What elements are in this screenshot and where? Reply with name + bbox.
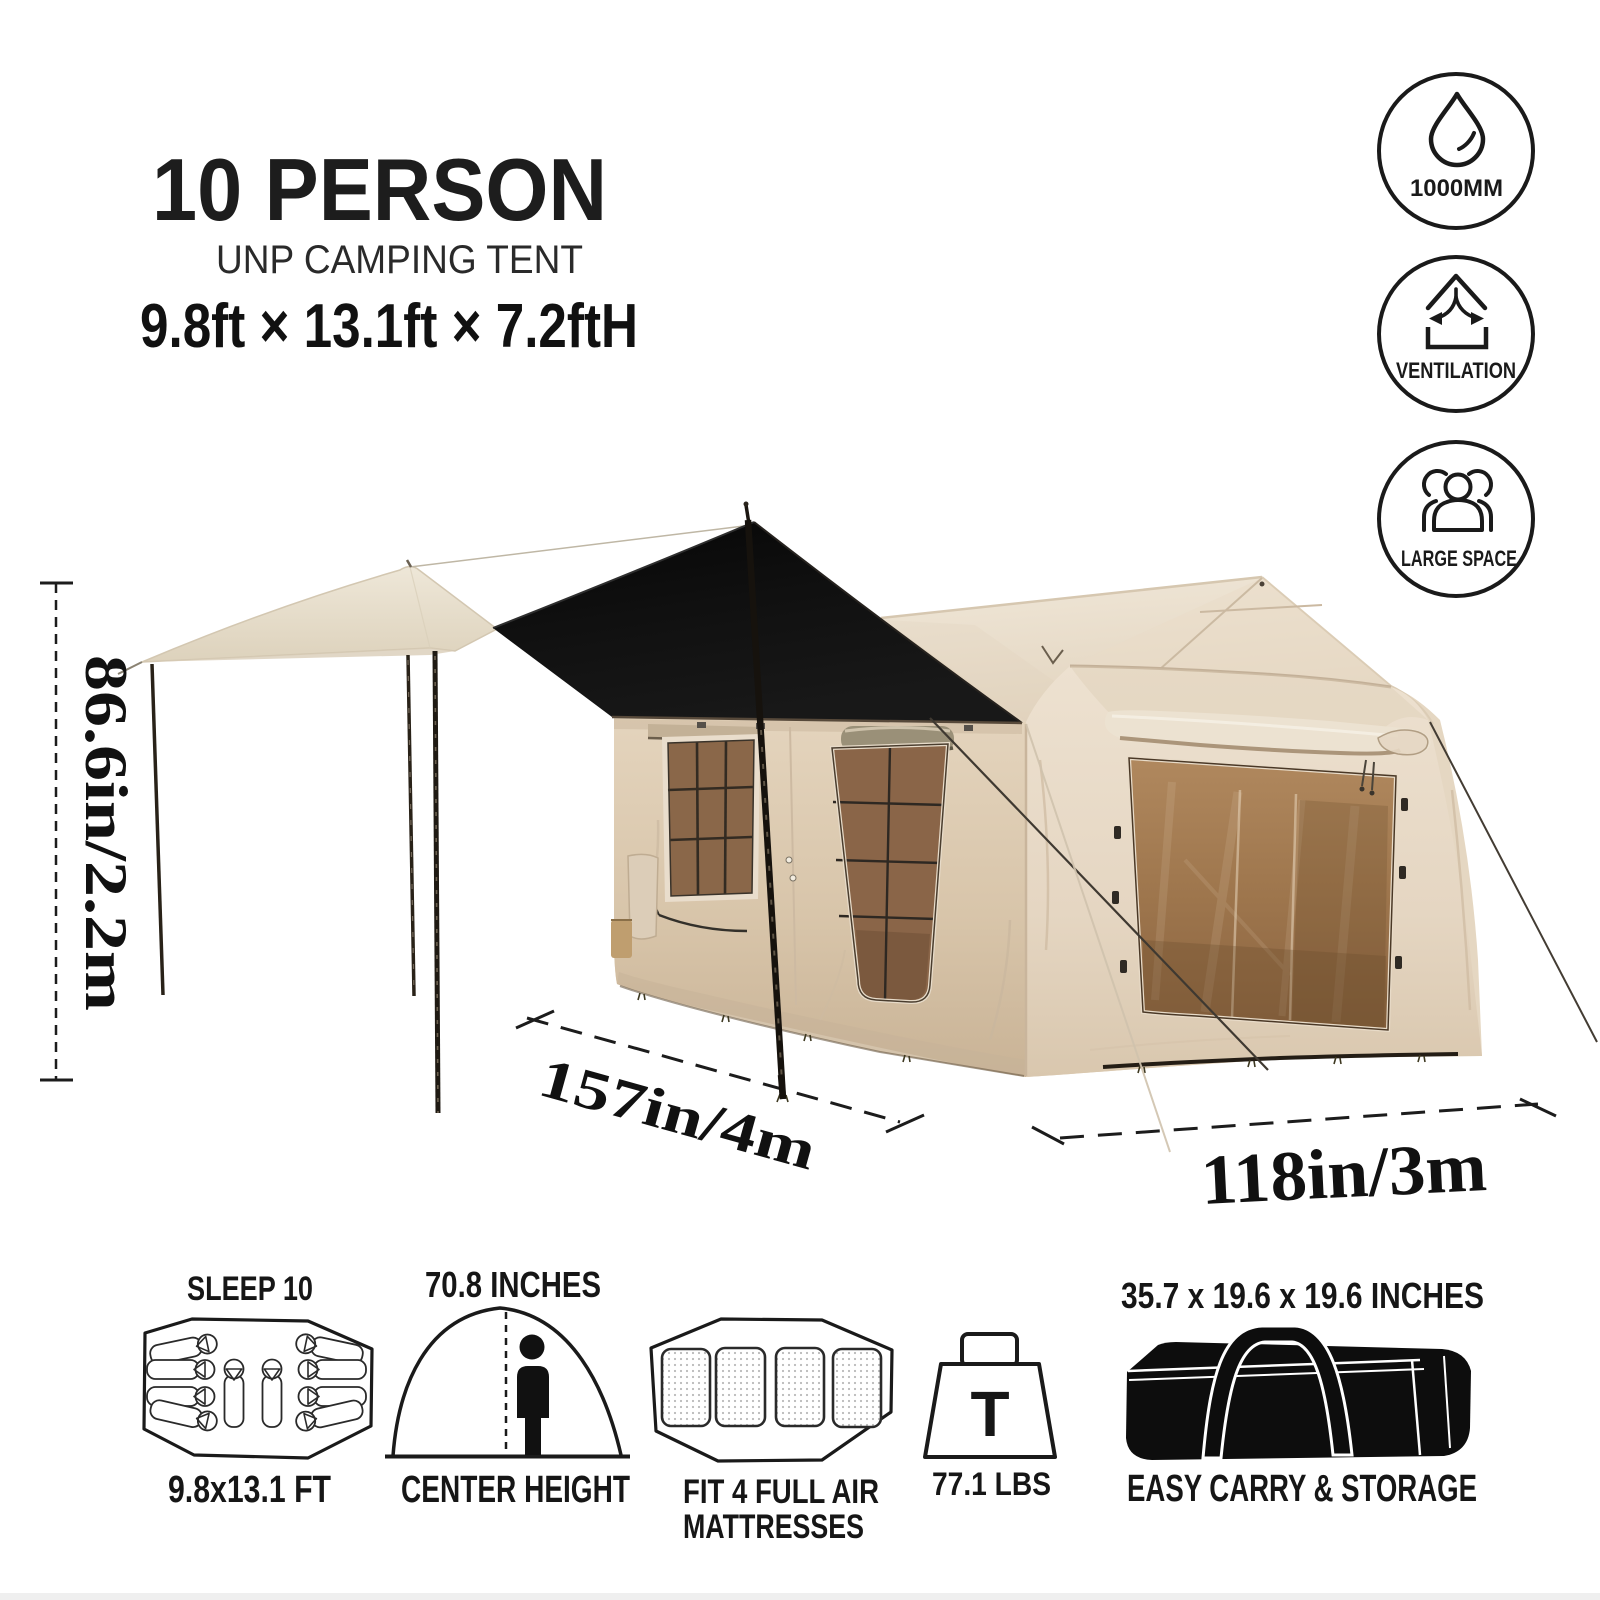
svg-text:CENTER HEIGHT: CENTER HEIGHT [401, 1469, 630, 1511]
svg-text:1000MM: 1000MM [1410, 175, 1503, 202]
svg-text:35.7 x 19.6 x 19.6 INCHES: 35.7 x 19.6 x 19.6 INCHES [1121, 1275, 1484, 1316]
svg-text:10 PERSON: 10 PERSON [152, 140, 607, 239]
svg-text:EASY CARRY & STORAGE: EASY CARRY & STORAGE [1127, 1468, 1477, 1510]
svg-text:86.6in/2.2m: 86.6in/2.2m [73, 655, 139, 1011]
svg-text:FIT 4 FULL AIR: FIT 4 FULL AIR [683, 1473, 879, 1511]
svg-text:9.8x13.1 FT: 9.8x13.1 FT [168, 1469, 331, 1511]
svg-text:118in/3m: 118in/3m [1199, 1128, 1488, 1220]
svg-text:VENTILATION: VENTILATION [1396, 358, 1516, 383]
svg-text:LARGE SPACE: LARGE SPACE [1401, 546, 1517, 571]
svg-text:UNP CAMPING TENT: UNP CAMPING TENT [216, 238, 583, 282]
svg-text:9.8ft × 13.1ft × 7.2ftH: 9.8ft × 13.1ft × 7.2ftH [140, 292, 638, 361]
svg-text:T: T [970, 1378, 1009, 1450]
svg-text:77.1 LBS: 77.1 LBS [932, 1466, 1051, 1502]
svg-text:SLEEP 10: SLEEP 10 [187, 1270, 313, 1308]
svg-text:70.8 INCHES: 70.8 INCHES [425, 1264, 601, 1305]
svg-text:MATTRESSES: MATTRESSES [683, 1508, 864, 1546]
